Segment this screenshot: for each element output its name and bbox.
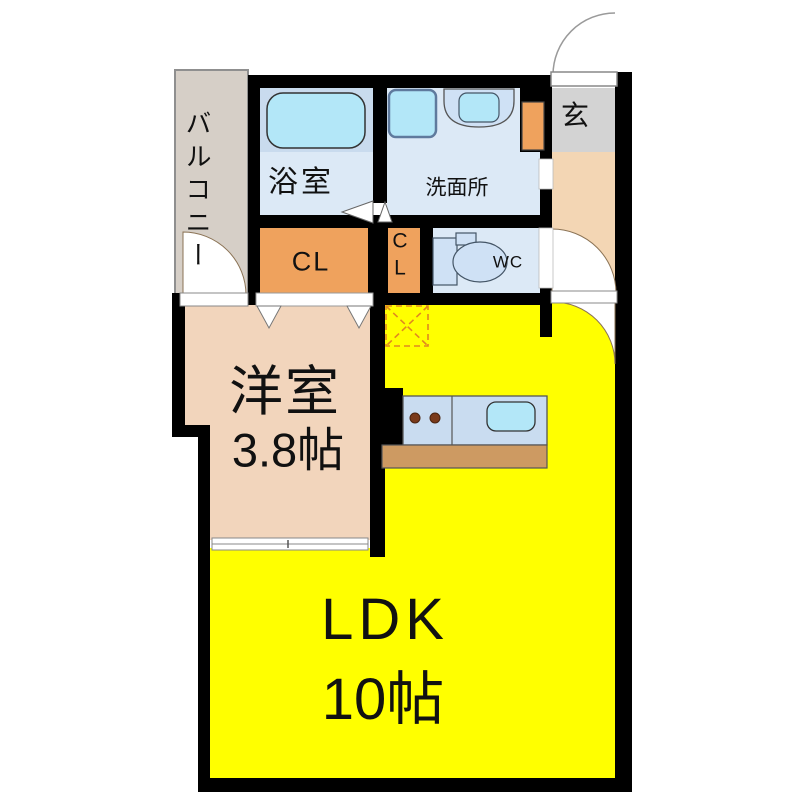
entrance-door-leaf	[551, 72, 617, 86]
kitchen-sink	[487, 402, 535, 431]
shoe-cabinet	[522, 102, 544, 150]
ldk-size: 10帖	[322, 671, 445, 729]
washroom-door-opening	[539, 159, 553, 189]
balcony-label: バルコニー	[184, 110, 210, 275]
western-room-name: 洋室	[229, 365, 341, 419]
vanity-bowl	[459, 93, 499, 122]
closet-small-line1: C	[392, 230, 407, 253]
stove-burner-right	[430, 413, 440, 423]
bathtub	[267, 93, 365, 148]
ldk-area-lower	[210, 548, 390, 778]
ldk-name: LDK	[321, 591, 449, 649]
counter-base	[382, 445, 547, 468]
entrance-label: 玄	[561, 102, 589, 130]
wc-door-opening	[539, 228, 553, 288]
ldk-door-leaf	[551, 291, 617, 303]
closet-small-line2: L	[394, 257, 406, 280]
washing-machine-pan	[389, 90, 436, 137]
wc-label: WC	[493, 254, 523, 271]
closet-door-track	[256, 293, 373, 306]
closet-small-label: CL	[392, 228, 407, 283]
stove-burner-left	[410, 413, 420, 423]
bathroom-label: 浴室	[268, 168, 334, 198]
washroom-label: 洗面所	[426, 178, 489, 199]
western-room-size: 3.8帖	[232, 427, 344, 474]
balcony-door-leaf	[180, 293, 248, 306]
closet-main-label: CL	[292, 249, 331, 276]
entrance-door-arc	[553, 13, 615, 75]
floor-plan: バルコニー 浴室 洗面所 玄 CL CL WC 洋室 3.8帖 LDK 10帖	[0, 0, 800, 800]
